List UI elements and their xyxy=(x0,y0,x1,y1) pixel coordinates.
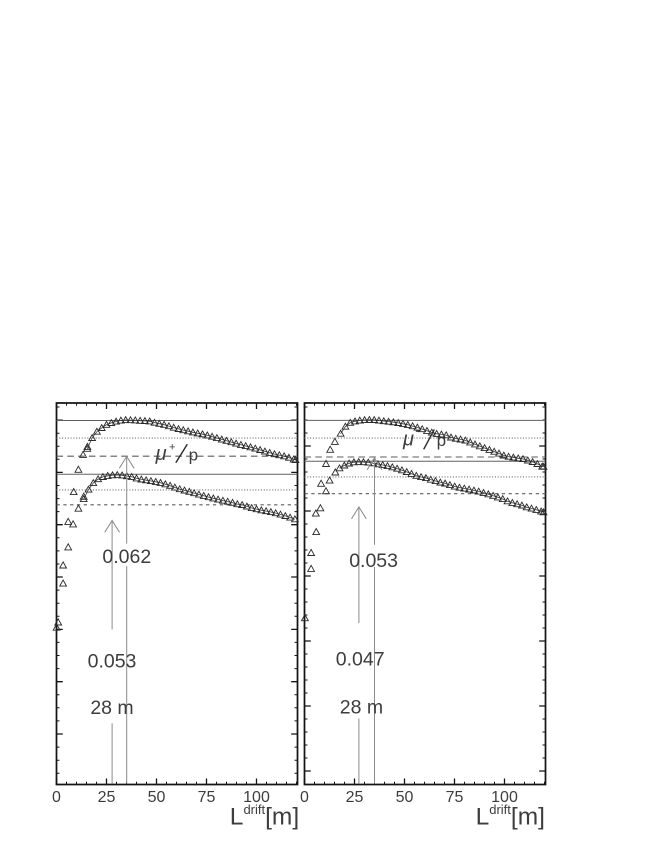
svg-text:50: 50 xyxy=(148,789,166,806)
svg-text:Ldrift[m]: Ldrift[m] xyxy=(230,802,299,831)
svg-text:0.062: 0.062 xyxy=(102,546,151,568)
svg-text:0.053: 0.053 xyxy=(349,550,398,572)
svg-text:0: 0 xyxy=(300,789,309,806)
svg-text:μ: μ xyxy=(155,443,167,465)
svg-text:28 m: 28 m xyxy=(340,697,383,719)
svg-text:0.047: 0.047 xyxy=(336,648,385,670)
svg-text:p: p xyxy=(189,445,198,464)
svg-text:25: 25 xyxy=(346,789,364,806)
svg-text:50: 50 xyxy=(396,789,414,806)
svg-text:75: 75 xyxy=(198,789,216,806)
svg-text:+: + xyxy=(169,442,175,454)
svg-text:0: 0 xyxy=(52,789,61,806)
svg-text:75: 75 xyxy=(446,789,464,806)
svg-text:25: 25 xyxy=(98,789,116,806)
svg-text:μ: μ xyxy=(402,429,414,451)
svg-text:p: p xyxy=(437,431,446,450)
svg-text:Ldrift[m]: Ldrift[m] xyxy=(476,802,545,831)
svg-text:0.053: 0.053 xyxy=(88,650,137,672)
svg-text:28 m: 28 m xyxy=(90,697,133,719)
